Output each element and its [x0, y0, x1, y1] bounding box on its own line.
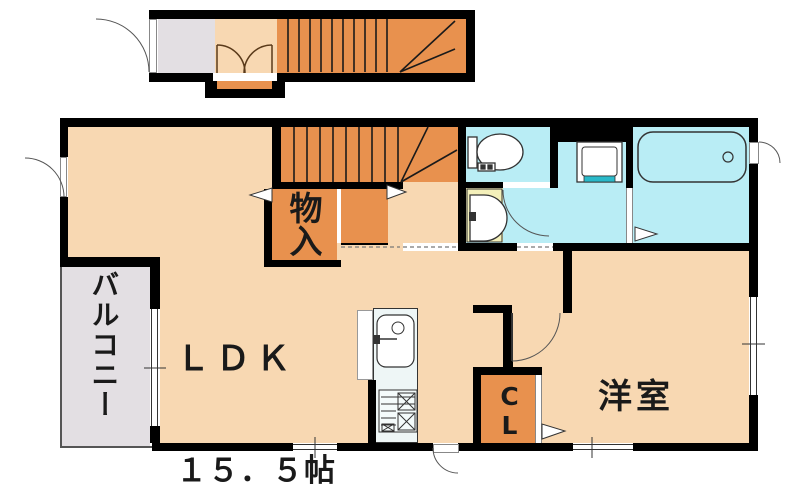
western-right-window — [749, 297, 758, 395]
wall-below-door — [503, 313, 513, 367]
toilet-door-opening — [503, 182, 550, 188]
western-room-label: 洋室 ６．１帖 — [598, 302, 722, 492]
toilet-room-floor — [466, 127, 550, 182]
wall-balcony-divider-1 — [150, 257, 160, 309]
wall-south-1 — [458, 243, 517, 251]
wall-closet-left — [473, 375, 481, 443]
floor-plan: ＬＤＫ １５．５帖 洋室 ６．１帖 バルコニー 物入 CL — [0, 0, 800, 492]
strip-wall-bottom — [149, 73, 475, 82]
entrance-porch-floor — [158, 19, 215, 73]
balcony-edge-left — [60, 267, 62, 448]
entrance-door-arc — [96, 19, 149, 72]
storage-cell-2 — [341, 189, 388, 243]
entrance-hall-floor — [215, 19, 277, 73]
wall-south-2 — [553, 243, 750, 251]
ldk-size: １５．５帖 — [176, 454, 336, 489]
wall-closet-top — [473, 367, 542, 375]
wall-bottom-3 — [458, 443, 573, 451]
closet-sliding-panel — [535, 375, 542, 443]
western-name: 洋室 — [598, 378, 722, 416]
bath-exterior-door-leaf — [749, 142, 759, 164]
strip-wall-right — [466, 10, 475, 82]
wall-kitchen — [368, 380, 376, 443]
bath-exterior-door-arc — [759, 142, 780, 163]
wall-toilet-bottom — [466, 182, 503, 188]
kitchen-unit — [373, 308, 418, 443]
kitchen-counter — [357, 310, 373, 380]
wall-right-2 — [749, 163, 758, 297]
entrance-step — [217, 81, 272, 89]
ldk-label: ＬＤＫ １５．５帖 — [176, 264, 336, 492]
vanity-area — [466, 188, 503, 242]
wall-balcony-divider-2 — [150, 426, 160, 443]
wall-left-1 — [60, 118, 68, 157]
storage-cell2-sill — [341, 243, 388, 245]
washroom-floor-upper — [558, 142, 626, 188]
left-door-arc — [25, 158, 64, 197]
hall-opening — [403, 243, 458, 251]
wall-balcony-top — [60, 257, 160, 267]
wall-bottom-2 — [337, 443, 433, 451]
closet-label: CL — [495, 382, 523, 438]
ldk-name: ＬＤＫ — [176, 340, 336, 378]
bathroom-floor — [633, 127, 750, 243]
wall-right-1 — [749, 118, 758, 142]
entrance-door-leaf — [149, 19, 157, 73]
wall-bath-left — [626, 127, 633, 188]
entrance-threshold — [213, 73, 277, 81]
wall-toilet-right — [550, 142, 558, 188]
wall-top — [60, 118, 758, 127]
balcony-label: バルコニー — [88, 270, 119, 442]
washroom-opening — [517, 243, 553, 251]
wall-stairs-bottom — [272, 182, 403, 189]
left-door-leaf — [60, 157, 67, 197]
stairs-2f — [281, 127, 458, 182]
balcony-edge-bottom — [60, 446, 152, 448]
bath-sliding-door — [626, 188, 633, 243]
wall-stairs-left — [272, 127, 281, 189]
stairs-1f — [277, 19, 466, 73]
balcony-window — [150, 309, 160, 426]
wall-door-header — [473, 305, 512, 313]
strip-wall-top — [149, 10, 475, 19]
storage-label: 物入 — [284, 191, 321, 259]
wall-western-left — [563, 251, 572, 313]
wall-duct — [550, 127, 626, 142]
wall-stairs-right — [458, 127, 466, 251]
wall-storage-left — [264, 189, 272, 267]
bottom-door-leaf — [433, 444, 459, 453]
